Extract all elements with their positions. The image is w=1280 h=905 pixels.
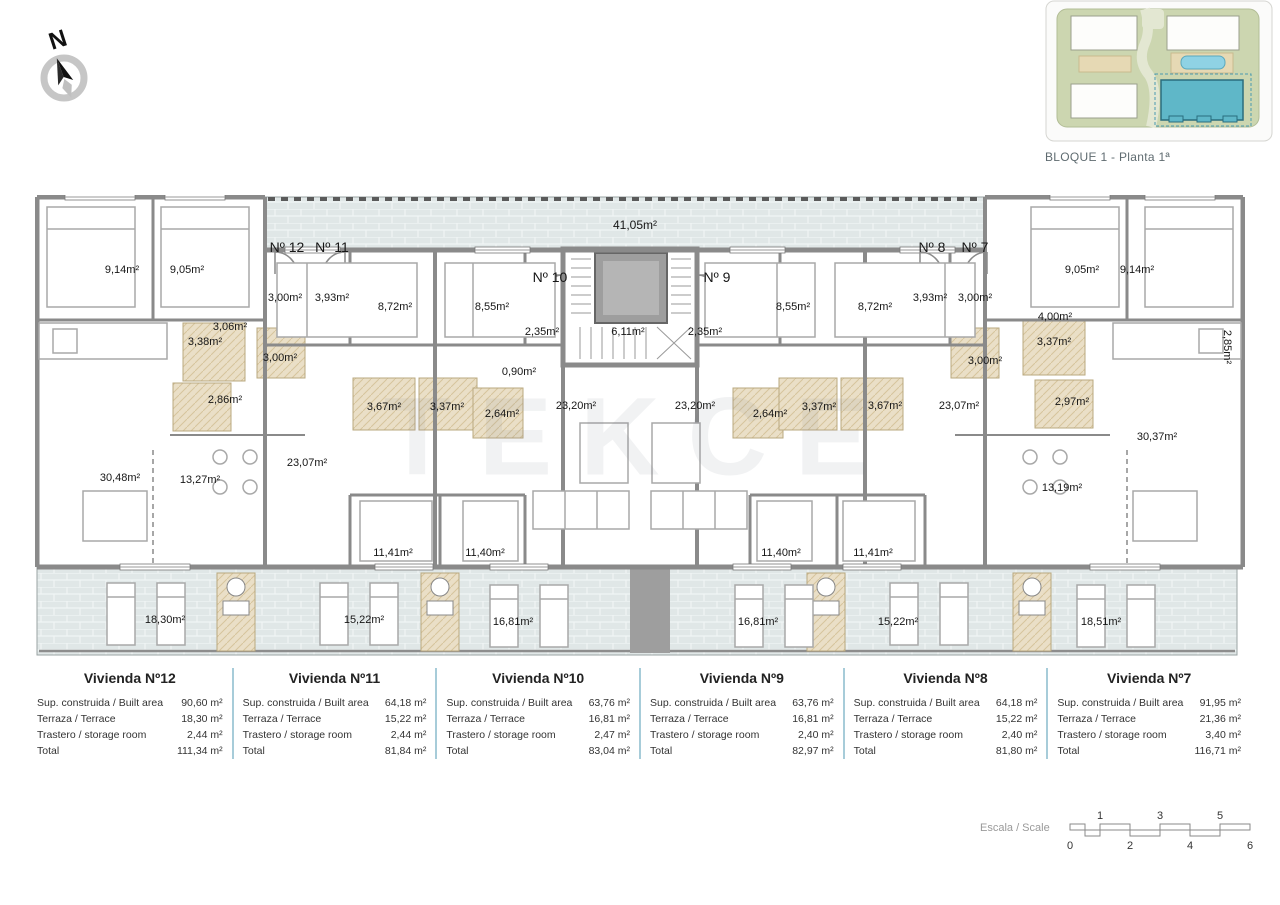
unit-table: Vivienda Nº8 Sup. construida / Built are… — [843, 668, 1047, 759]
unit-table-row: Sup. construida / Built area64,18 m² — [243, 695, 427, 711]
area-label: 4,00m² — [1038, 311, 1072, 323]
unit-table-row: Terraza / Terrace15,22 m² — [243, 711, 427, 727]
unit-table: Vivienda Nº9 Sup. construida / Built are… — [639, 668, 843, 759]
row-value: 2,40 m² — [798, 727, 834, 743]
area-label: 23,20m² — [675, 400, 715, 412]
row-value: 63,76 m² — [589, 695, 630, 711]
scale-bar-graphic: 1 3 5 0 2 4 6 — [1050, 806, 1265, 858]
area-label: 11,40m² — [761, 547, 801, 559]
row-label: Trastero / storage room — [854, 727, 963, 743]
row-value: 15,22 m² — [385, 711, 426, 727]
compass: N — [22, 20, 112, 115]
area-label: 23,07m² — [939, 400, 979, 412]
site-plan-thumbnail — [1045, 0, 1273, 142]
row-value: 111,34 m² — [177, 743, 223, 759]
unit-table-row: Sup. construida / Built area63,76 m² — [650, 695, 834, 711]
area-label: 3,00m² — [268, 292, 302, 304]
terrace-divider — [630, 567, 670, 653]
area-label: 2,86m² — [208, 394, 242, 406]
unit-table-row: Total111,34 m² — [37, 743, 223, 759]
scale-label: Escala / Scale — [980, 822, 1050, 834]
unit-table-title: Vivienda Nº11 — [243, 670, 427, 686]
unit-table-rows: Sup. construida / Built area64,18 m²Terr… — [243, 695, 427, 759]
row-value: 2,47 m² — [594, 727, 630, 743]
area-label: 2,97m² — [1055, 396, 1089, 408]
compass-n-label: N — [46, 25, 71, 56]
area-label: 3,93m² — [913, 292, 947, 304]
row-value: 90,60 m² — [181, 695, 222, 711]
unit-table: Vivienda Nº12 Sup. construida / Built ar… — [28, 668, 232, 759]
area-label: 41,05m² — [613, 218, 657, 232]
unit-table-row: Terraza / Terrace18,30 m² — [37, 711, 223, 727]
unit-table-row: Total83,04 m² — [446, 743, 630, 759]
scale-tick: 0 — [1067, 840, 1073, 852]
area-label: 13,27m² — [180, 474, 220, 486]
unit-number-label: Nº 9 — [704, 269, 731, 285]
area-label: 11,40m² — [465, 547, 505, 559]
area-label: 9,05m² — [1065, 264, 1099, 276]
area-label: 9,14m² — [105, 264, 139, 276]
site-plan-caption: BLOQUE 1 - Planta 1ª — [1045, 150, 1275, 164]
unit-number-label: Nº 11 — [315, 239, 349, 255]
area-label: 8,55m² — [776, 301, 810, 313]
area-label: 18,51m² — [1081, 616, 1121, 628]
area-label: 3,00m² — [968, 355, 1002, 367]
area-label: 6,11m² — [611, 326, 644, 338]
floor-plan: TEKCE Nº 12Nº 11Nº 10Nº 9Nº 8Nº 741,05m²… — [35, 195, 1245, 660]
area-label: 2,35m² — [525, 326, 559, 338]
row-value: 63,76 m² — [792, 695, 833, 711]
row-label: Total — [243, 743, 265, 759]
unit-table-rows: Sup. construida / Built area63,76 m²Terr… — [650, 695, 834, 759]
unit-table-row: Sup. construida / Built area63,76 m² — [446, 695, 630, 711]
unit-table-title: Vivienda Nº7 — [1057, 670, 1241, 686]
row-value: 91,95 m² — [1200, 695, 1241, 711]
area-label: 15,22m² — [344, 614, 384, 626]
row-label: Trastero / storage room — [37, 727, 146, 743]
unit-table-title: Vivienda Nº12 — [37, 670, 223, 686]
row-value: 15,22 m² — [996, 711, 1037, 727]
unit-table: Vivienda Nº11 Sup. construida / Built ar… — [232, 668, 436, 759]
area-label: 8,72m² — [378, 301, 412, 313]
row-value: 64,18 m² — [996, 695, 1037, 711]
unit-area-tables: Vivienda Nº12 Sup. construida / Built ar… — [28, 668, 1250, 759]
row-label: Terraza / Terrace — [650, 711, 729, 727]
row-value: 2,44 m² — [391, 727, 427, 743]
row-label: Total — [650, 743, 672, 759]
unit-number-label: Nº 12 — [270, 239, 305, 255]
area-label: 23,07m² — [287, 457, 327, 469]
row-label: Total — [37, 743, 59, 759]
row-value: 21,36 m² — [1200, 711, 1241, 727]
row-value: 83,04 m² — [589, 743, 630, 759]
row-value: 18,30 m² — [181, 711, 222, 727]
row-value: 2,44 m² — [187, 727, 223, 743]
row-label: Trastero / storage room — [243, 727, 352, 743]
unit-table-row: Sup. construida / Built area90,60 m² — [37, 695, 223, 711]
unit-number-label: Nº 8 — [919, 239, 946, 255]
area-label: 3,06m² — [213, 321, 247, 333]
unit-table-row: Total82,97 m² — [650, 743, 834, 759]
scale-tick: 5 — [1217, 810, 1223, 822]
row-label: Terraza / Terrace — [1057, 711, 1136, 727]
area-label: 2,64m² — [485, 408, 519, 420]
row-value: 16,81 m² — [792, 711, 833, 727]
row-label: Sup. construida / Built area — [37, 695, 163, 711]
area-label: 18,30m² — [145, 614, 185, 626]
row-value: 81,84 m² — [385, 743, 426, 759]
row-label: Sup. construida / Built area — [650, 695, 776, 711]
page: N BLOQUE 1 - Plan — [0, 0, 1280, 905]
area-label: 3,37m² — [1037, 336, 1071, 348]
row-label: Total — [446, 743, 468, 759]
area-label: 3,67m² — [868, 400, 902, 412]
row-label: Trastero / storage room — [650, 727, 759, 743]
unit-table-rows: Sup. construida / Built area63,76 m²Terr… — [446, 695, 630, 759]
scale-tick: 6 — [1247, 840, 1253, 852]
row-label: Sup. construida / Built area — [854, 695, 980, 711]
row-value: 2,40 m² — [1002, 727, 1038, 743]
row-label: Terraza / Terrace — [854, 711, 933, 727]
row-value: 81,80 m² — [996, 743, 1037, 759]
unit-number-label: Nº 7 — [962, 239, 989, 255]
area-label: 9,05m² — [170, 264, 204, 276]
stair-core — [563, 249, 697, 365]
area-label: 23,20m² — [556, 400, 596, 412]
area-label: 3,00m² — [263, 352, 297, 364]
area-label: 3,67m² — [367, 401, 401, 413]
unit-table-row: Sup. construida / Built area91,95 m² — [1057, 695, 1241, 711]
unit-table-rows: Sup. construida / Built area64,18 m²Terr… — [854, 695, 1038, 759]
scale-bar: Escala / Scale 1 3 5 0 2 4 6 — [980, 806, 1265, 858]
row-label: Sup. construida / Built area — [243, 695, 369, 711]
area-label: 16,81m² — [738, 616, 778, 628]
unit-table: Vivienda Nº10 Sup. construida / Built ar… — [435, 668, 639, 759]
unit-table-row: Terraza / Terrace21,36 m² — [1057, 711, 1241, 727]
unit-table-row: Terraza / Terrace15,22 m² — [854, 711, 1038, 727]
unit-table: Vivienda Nº7 Sup. construida / Built are… — [1046, 668, 1250, 759]
unit-number-label: Nº 10 — [533, 269, 568, 285]
row-label: Terraza / Terrace — [243, 711, 322, 727]
unit-table-row: Total81,80 m² — [854, 743, 1038, 759]
row-label: Terraza / Terrace — [446, 711, 525, 727]
unit-table-rows: Sup. construida / Built area90,60 m²Terr… — [37, 695, 223, 759]
area-label: 2,85m² — [1221, 330, 1233, 364]
area-label: 3,00m² — [958, 292, 992, 304]
row-label: Sup. construida / Built area — [446, 695, 572, 711]
area-label: 3,93m² — [315, 292, 349, 304]
unit-table-row: Total81,84 m² — [243, 743, 427, 759]
unit-table-rows: Sup. construida / Built area91,95 m²Terr… — [1057, 695, 1241, 759]
unit-table-row: Trastero / storage room2,40 m² — [854, 727, 1038, 743]
row-value: 82,97 m² — [792, 743, 833, 759]
site-plan-icon — [1045, 0, 1273, 142]
scale-tick: 3 — [1157, 810, 1163, 822]
area-label: 3,38m² — [188, 336, 222, 348]
unit-table-row: Trastero / storage room2,47 m² — [446, 727, 630, 743]
area-label: 30,48m² — [100, 472, 140, 484]
row-label: Total — [1057, 743, 1079, 759]
unit-table-row: Trastero / storage room2,44 m² — [37, 727, 223, 743]
floor-plan-drawing — [35, 195, 1245, 660]
unit-table-row: Trastero / storage room3,40 m² — [1057, 727, 1241, 743]
row-label: Trastero / storage room — [1057, 727, 1166, 743]
unit-table-title: Vivienda Nº9 — [650, 670, 834, 686]
area-label: 2,35m² — [688, 326, 722, 338]
row-label: Sup. construida / Built area — [1057, 695, 1183, 711]
area-label: 8,72m² — [858, 301, 892, 313]
area-label: 30,37m² — [1137, 431, 1177, 443]
row-value: 3,40 m² — [1205, 727, 1241, 743]
area-label: 8,55m² — [475, 301, 509, 313]
area-label: 15,22m² — [878, 616, 918, 628]
area-label: 3,37m² — [430, 401, 464, 413]
scale-tick: 4 — [1187, 840, 1193, 852]
area-label: 16,81m² — [493, 616, 533, 628]
unit-table-title: Vivienda Nº8 — [854, 670, 1038, 686]
row-value: 16,81 m² — [589, 711, 630, 727]
unit-table-row: Trastero / storage room2,40 m² — [650, 727, 834, 743]
area-label: 3,37m² — [802, 401, 836, 413]
row-label: Terraza / Terrace — [37, 711, 116, 727]
area-label: 11,41m² — [373, 547, 413, 559]
unit-table-row: Sup. construida / Built area64,18 m² — [854, 695, 1038, 711]
area-label: 9,14m² — [1120, 264, 1154, 276]
area-label: 11,41m² — [853, 547, 893, 559]
area-label: 0,90m² — [502, 366, 536, 378]
unit-table-row: Total116,71 m² — [1057, 743, 1241, 759]
unit-table-title: Vivienda Nº10 — [446, 670, 630, 686]
area-label: 13,19m² — [1042, 482, 1082, 494]
scale-tick: 1 — [1097, 810, 1103, 822]
row-value: 116,71 m² — [1195, 743, 1242, 759]
unit-table-row: Terraza / Terrace16,81 m² — [650, 711, 834, 727]
unit-table-row: Trastero / storage room2,44 m² — [243, 727, 427, 743]
scale-tick: 2 — [1127, 840, 1133, 852]
area-label: 2,64m² — [753, 408, 787, 420]
row-label: Trastero / storage room — [446, 727, 555, 743]
compass-icon: N — [22, 20, 112, 115]
unit-table-row: Terraza / Terrace16,81 m² — [446, 711, 630, 727]
row-value: 64,18 m² — [385, 695, 426, 711]
row-label: Total — [854, 743, 876, 759]
